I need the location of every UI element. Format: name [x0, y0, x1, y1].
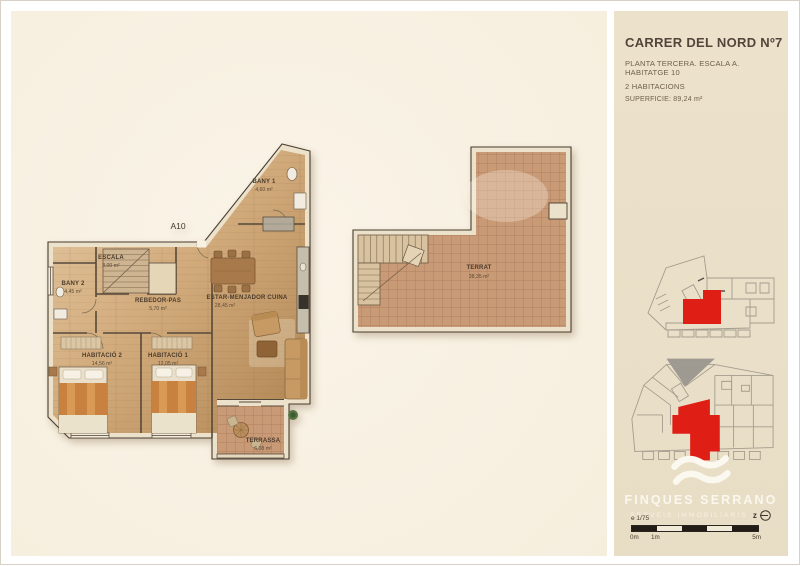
highlighted-unit	[683, 290, 721, 324]
scale-segment	[732, 526, 758, 531]
highlighted-unit	[672, 399, 719, 451]
sheet-background: BANY 1 4,60 m² ESCALA 3,00 m² BANY 2 4,4…	[0, 0, 800, 565]
brand-block: FINQUES SERRANO SERVEIS IMMOBILIARIS z	[614, 452, 788, 522]
scale-ratio: e 1/75	[631, 515, 771, 522]
bedrooms-line: 2 HABITACIONS	[625, 82, 782, 91]
scale-labels: 0m 1m 5m	[631, 534, 759, 543]
scale-label-5: 5m	[752, 534, 761, 541]
wave-icon	[667, 449, 735, 493]
page-title: CARRER DEL NORD Nº7	[625, 36, 783, 51]
floor-line: PLANTA TERCERA. ESCALA A. HABITATGE 10	[625, 59, 782, 77]
scale-bar	[631, 525, 759, 532]
surface-line: SUPERFICIE: 89,24 m²	[625, 96, 782, 103]
scale-label-0: 0m	[630, 534, 639, 541]
info-sidebar: CARRER DEL NORD Nº7 PLANTA TERCERA. ESCA…	[614, 11, 788, 556]
scale-label-1: 1m	[651, 534, 660, 541]
site-doors	[698, 278, 725, 291]
scale-segment	[632, 526, 657, 531]
company-name: FINQUES SERRANO	[614, 493, 788, 507]
unit-details: PLANTA TERCERA. ESCALA A. HABITATGE 10 2…	[625, 59, 782, 103]
site-plan-lower	[623, 355, 781, 467]
site-plan-upper	[628, 251, 778, 353]
plan-canvas	[11, 11, 607, 556]
scale-segment	[682, 526, 707, 531]
scale-block: e 1/75 0m 1m 5m	[631, 515, 771, 543]
scale-segment	[657, 526, 682, 531]
scale-segment	[707, 526, 732, 531]
